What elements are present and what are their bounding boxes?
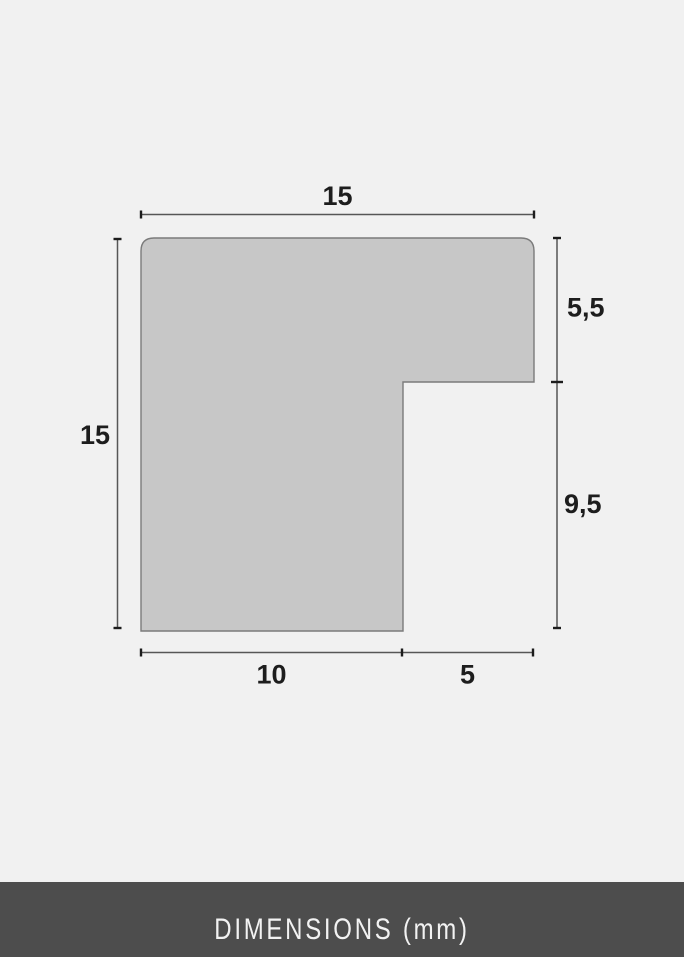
svg-text:9,5: 9,5: [564, 489, 602, 519]
svg-text:5: 5: [460, 660, 475, 690]
svg-text:5,5: 5,5: [567, 293, 605, 323]
svg-text:15: 15: [322, 181, 352, 211]
svg-text:10: 10: [256, 660, 286, 690]
svg-text:15: 15: [80, 420, 110, 450]
